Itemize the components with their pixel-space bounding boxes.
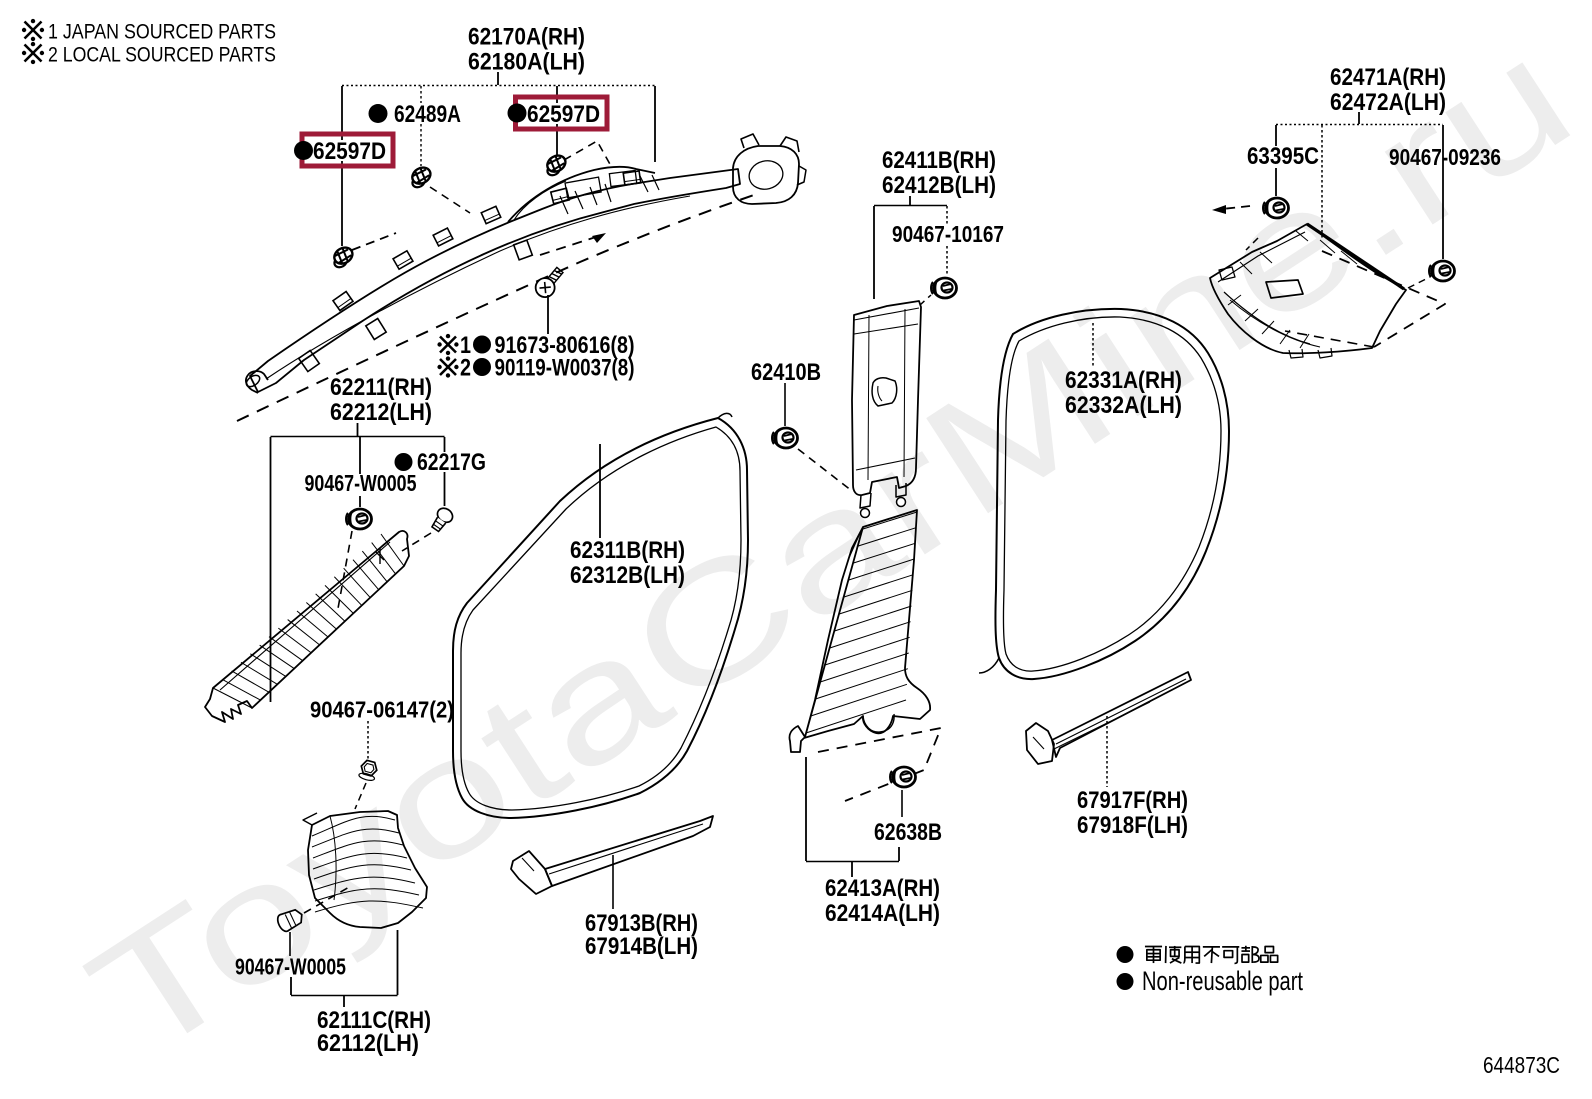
svg-text:Non-reusable part: Non-reusable part [1142,966,1303,996]
svg-text:62411B(RH): 62411B(RH) [882,147,996,174]
svg-text:62471A(RH): 62471A(RH) [1330,64,1446,91]
svg-text:90467-06147(2): 90467-06147(2) [310,697,454,723]
svg-text:90467-W0005: 90467-W0005 [305,470,417,496]
svg-text:90119-W0037(8): 90119-W0037(8) [495,355,635,382]
svg-text:62311B(RH): 62311B(RH) [570,537,685,564]
svg-text:67918F(LH): 67918F(LH) [1077,812,1188,839]
svg-text:90467-W0005: 90467-W0005 [235,954,346,980]
svg-text:2 LOCAL SOURCED PARTS: 2 LOCAL SOURCED PARTS [48,43,276,67]
svg-text:62211(RH): 62211(RH) [330,374,432,401]
svg-text:90467-10167: 90467-10167 [892,221,1004,247]
svg-text:62312B(LH): 62312B(LH) [570,562,685,589]
svg-text:62413A(RH): 62413A(RH) [825,875,940,902]
svg-text:62332A(LH): 62332A(LH) [1065,392,1182,419]
svg-text:62212(LH): 62212(LH) [330,399,432,426]
svg-text:62112(LH): 62112(LH) [317,1030,419,1057]
svg-text:90467-09236: 90467-09236 [1389,144,1501,170]
svg-text:67914B(LH): 67914B(LH) [585,933,698,960]
svg-text:62410B: 62410B [751,359,821,386]
svg-text:62489A: 62489A [394,101,461,128]
svg-text:62414A(LH): 62414A(LH) [825,900,940,927]
svg-text:2: 2 [460,355,471,382]
svg-text:62597D: 62597D [313,138,386,165]
svg-text:1 JAPAN SOURCED PARTS: 1 JAPAN SOURCED PARTS [48,20,276,44]
svg-text:62472A(LH): 62472A(LH) [1330,89,1446,116]
svg-text:67917F(RH): 67917F(RH) [1077,787,1188,814]
svg-text:62597D: 62597D [527,101,600,128]
svg-text:644873C: 644873C [1483,1052,1560,1078]
svg-text:62638B: 62638B [874,819,942,846]
svg-text:62331A(RH): 62331A(RH) [1065,367,1182,394]
svg-text:62217G: 62217G [417,449,486,476]
svg-text:62412B(LH): 62412B(LH) [882,172,996,199]
svg-text:63395C: 63395C [1247,143,1319,170]
svg-text:62170A(RH): 62170A(RH) [468,24,585,51]
svg-text:62180A(LH): 62180A(LH) [468,49,585,76]
